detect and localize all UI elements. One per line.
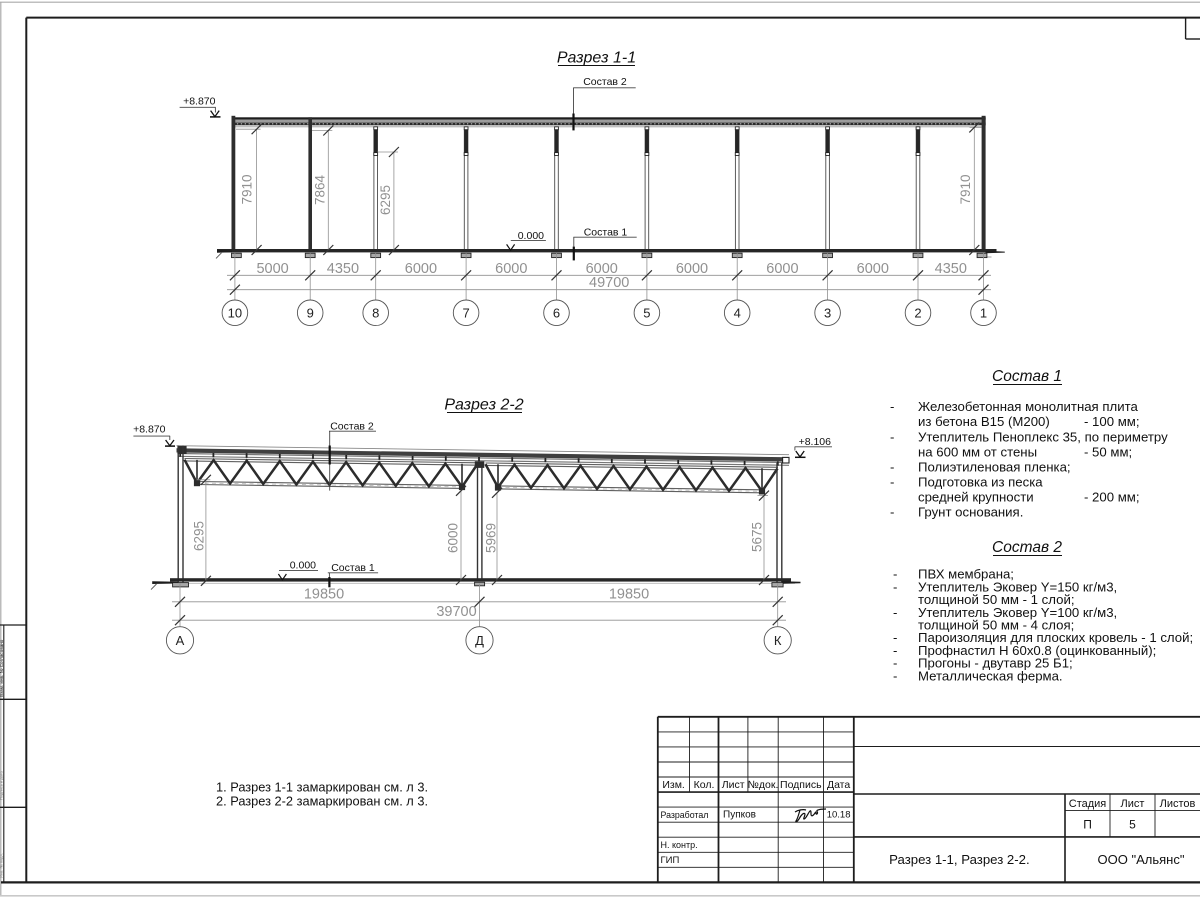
svg-text:Состав 2: Состав 2 — [583, 76, 627, 88]
svg-text:39700: 39700 — [436, 604, 476, 620]
svg-text:7864: 7864 — [313, 174, 328, 205]
svg-text:0.000: 0.000 — [290, 560, 316, 572]
svg-text:Разработал: Разработал — [661, 810, 709, 820]
svg-text:Подготовка из песка: Подготовка из песка — [918, 475, 1043, 490]
svg-text:Металлическая ферма.: Металлическая ферма. — [918, 668, 1063, 683]
svg-text:-: - — [890, 505, 894, 520]
svg-text:6: 6 — [553, 305, 560, 320]
svg-text:Подпись и дата: Подпись и дата — [0, 770, 4, 800]
svg-text:П: П — [1083, 818, 1092, 832]
svg-text:Лист: Лист — [1121, 798, 1145, 810]
svg-text:Дата: Дата — [827, 779, 850, 791]
svg-text:Состав 1: Состав 1 — [992, 368, 1062, 385]
svg-text:-: - — [890, 399, 894, 414]
svg-text:5969: 5969 — [484, 523, 499, 553]
svg-text:-: - — [890, 429, 894, 444]
svg-text:- 50 мм;: - 50 мм; — [1084, 444, 1132, 459]
svg-text:Грунт основания.: Грунт основания. — [918, 505, 1023, 520]
svg-text:4: 4 — [734, 305, 741, 320]
svg-text:Разрез 2-2: Разрез 2-2 — [444, 397, 523, 414]
svg-text:Листов: Листов — [1160, 798, 1196, 810]
svg-text:8: 8 — [372, 305, 379, 320]
svg-text:6295: 6295 — [192, 521, 207, 551]
svg-text:6000: 6000 — [446, 523, 461, 553]
svg-text:Взам. инв. № Согласовано: Взам. инв. № Согласовано — [0, 639, 4, 697]
svg-text:К: К — [774, 633, 782, 648]
svg-text:+8.870: +8.870 — [133, 424, 166, 436]
svg-text:6000: 6000 — [676, 261, 708, 277]
svg-text:А: А — [176, 633, 185, 648]
svg-text:Состав 2: Состав 2 — [992, 539, 1062, 556]
svg-text:1. Разрез 1-1 замаркирован см.: 1. Разрез 1-1 замаркирован см. л 3. — [216, 780, 428, 795]
svg-text:19850: 19850 — [609, 586, 649, 602]
svg-text:Кол.: Кол. — [694, 779, 715, 791]
svg-text:- 100 мм;: - 100 мм; — [1084, 414, 1140, 429]
svg-text:4350: 4350 — [935, 261, 967, 277]
svg-text:Состав 2: Состав 2 — [330, 420, 374, 432]
svg-text:из бетона В15 (М200): из бетона В15 (М200) — [918, 414, 1050, 429]
svg-text:-: - — [893, 668, 897, 683]
svg-text:Лист: Лист — [722, 779, 745, 791]
svg-text:Железобетонная монолитная пли: Железобетонная монолитная плита — [918, 399, 1138, 414]
svg-text:-: - — [893, 579, 897, 594]
svg-text:Инв. № подл.: Инв. № подл. — [0, 853, 4, 878]
svg-text:2. Разрез 2-2 замаркирован см.: 2. Разрез 2-2 замаркирован см. л 3. — [216, 794, 428, 809]
svg-text:-: - — [890, 475, 894, 490]
svg-text:Стадия: Стадия — [1069, 798, 1107, 810]
svg-text:Д: Д — [475, 633, 484, 648]
svg-text:Разрез 1-1: Разрез 1-1 — [557, 50, 636, 67]
svg-text:7: 7 — [462, 305, 469, 320]
svg-text:49700: 49700 — [589, 275, 629, 291]
svg-text:+8.870: +8.870 — [183, 95, 216, 107]
svg-text:Разрез 1-1, Разрез 2-2.: Разрез 1-1, Разрез 2-2. — [889, 852, 1029, 867]
svg-text:9: 9 — [307, 305, 314, 320]
svg-text:-: - — [893, 605, 897, 620]
svg-text:ООО "Альянс": ООО "Альянс" — [1098, 852, 1185, 867]
svg-text:6000: 6000 — [405, 261, 437, 277]
svg-text:Пупков: Пупков — [723, 810, 756, 821]
svg-text:6000: 6000 — [857, 261, 889, 277]
svg-text:10: 10 — [228, 305, 242, 320]
svg-text:Состав 1: Состав 1 — [584, 226, 628, 238]
svg-text:Подпись: Подпись — [780, 779, 822, 791]
svg-text:3: 3 — [824, 305, 831, 320]
svg-text:6000: 6000 — [766, 261, 798, 277]
svg-text:7910: 7910 — [239, 174, 254, 204]
svg-text:1: 1 — [980, 305, 987, 320]
svg-text:5: 5 — [643, 305, 650, 320]
svg-text:10.18: 10.18 — [827, 810, 851, 821]
svg-text:19850: 19850 — [304, 586, 344, 602]
svg-text:5000: 5000 — [256, 261, 288, 277]
svg-text:Утеплитель Пеноплекс 35, по пе: Утеплитель Пеноплекс 35, по периметру — [918, 429, 1168, 444]
svg-text:Н. контр.: Н. контр. — [661, 840, 698, 850]
svg-text:Полиэтиленовая пленка;: Полиэтиленовая пленка; — [918, 459, 1071, 474]
svg-text:Состав 1: Состав 1 — [331, 562, 375, 574]
svg-text:№док.: №док. — [748, 779, 779, 791]
svg-text:0.000: 0.000 — [518, 230, 544, 242]
svg-text:2: 2 — [914, 305, 921, 320]
svg-text:7910: 7910 — [958, 174, 973, 204]
svg-text:4350: 4350 — [327, 261, 359, 277]
svg-text:-: - — [890, 459, 894, 474]
svg-text:5: 5 — [1129, 818, 1136, 832]
svg-text:ГИП: ГИП — [661, 855, 680, 866]
svg-text:- 200 мм;: - 200 мм; — [1084, 490, 1140, 505]
svg-text:6295: 6295 — [378, 185, 393, 215]
svg-text:средней крупности: средней крупности — [918, 490, 1034, 505]
svg-text:на 600 мм от стены: на 600 мм от стены — [918, 444, 1037, 459]
svg-text:Изм.: Изм. — [662, 779, 685, 791]
svg-text:5675: 5675 — [750, 522, 765, 552]
svg-text:6000: 6000 — [495, 261, 527, 277]
